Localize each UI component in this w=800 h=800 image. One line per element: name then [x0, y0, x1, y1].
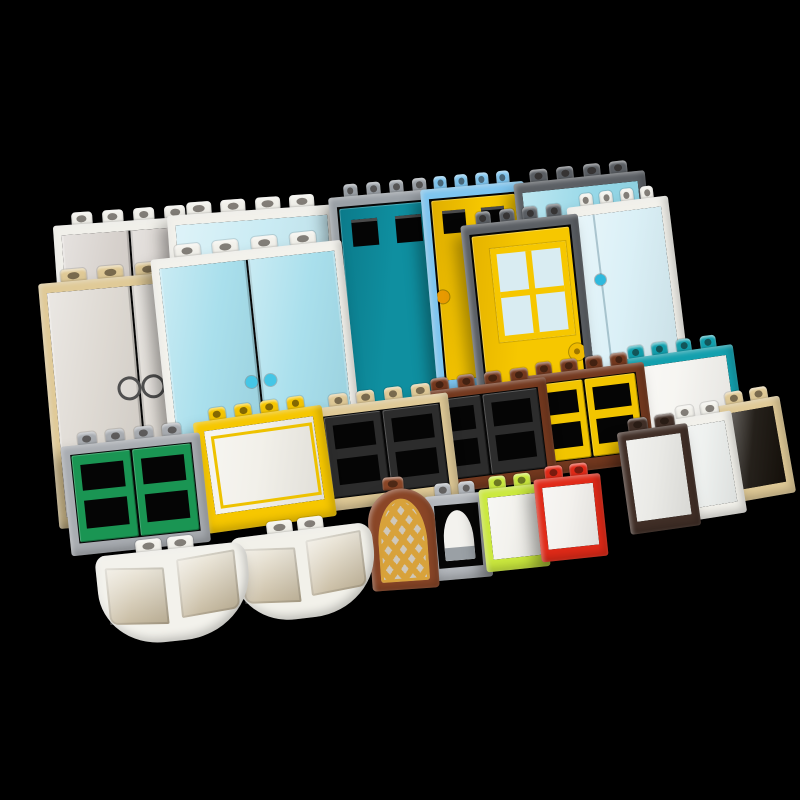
stud-hole [590, 359, 598, 367]
lattice-arch [375, 497, 430, 583]
door-window-4pane [490, 241, 576, 342]
opening [204, 416, 325, 514]
sash-hole [141, 454, 186, 484]
stud-hole [104, 269, 117, 277]
stud-hole [296, 198, 308, 206]
stud-hole [213, 410, 222, 418]
stud-hole [181, 247, 194, 255]
stud-hole [603, 194, 610, 202]
opening [434, 502, 483, 569]
stud-hole [77, 215, 87, 223]
stud-hole [139, 429, 149, 437]
opening [626, 433, 692, 522]
sash-hole [395, 447, 439, 478]
stud-hole [439, 486, 447, 494]
stud-hole [303, 520, 316, 529]
stud-hole [705, 405, 714, 413]
stud-hole [488, 374, 497, 382]
stud-hole [297, 235, 310, 243]
stud-hole [291, 399, 300, 407]
stud-hole [258, 239, 271, 247]
stud-hole [549, 469, 558, 477]
arched-opening [441, 509, 475, 562]
glass-sheen [105, 567, 170, 625]
stud-hole [615, 356, 623, 364]
stud-hole [754, 390, 763, 399]
door-window-hole [395, 214, 423, 243]
stud-hole [167, 426, 177, 434]
stud-hole [139, 211, 149, 219]
inner-pane-frame [210, 422, 322, 509]
stud-hole [565, 362, 573, 370]
window-small-red [532, 461, 609, 562]
stud-hole [174, 539, 187, 547]
bow-glass-right [305, 530, 367, 597]
stud-hole [458, 178, 465, 186]
window-sash [482, 388, 546, 474]
sash-hole [81, 460, 126, 490]
sash-hole [491, 398, 533, 426]
stud-hole [623, 192, 630, 200]
stud-hole [265, 403, 274, 411]
glass-sheen [176, 549, 241, 618]
stud-hole [67, 272, 80, 280]
glass-sheen [487, 493, 541, 560]
lego-doors-windows-photo [0, 0, 800, 800]
stud-hole [479, 215, 487, 223]
stud-hole [644, 189, 651, 197]
opening [487, 493, 541, 560]
train-window-yellow [191, 393, 337, 534]
stud-hole [587, 167, 596, 175]
sash-hole [84, 496, 129, 528]
stud-hole [416, 387, 425, 395]
opening [70, 442, 201, 543]
glass-sheen [626, 433, 692, 522]
window-sill-blind [445, 546, 476, 562]
door-handle-hole [574, 348, 581, 355]
stud-hole [574, 466, 583, 474]
stud-hole [393, 183, 400, 191]
bow-window-white-left [93, 529, 255, 648]
stud-hole [462, 484, 470, 492]
stud-hole [550, 207, 558, 215]
stud-hole [499, 174, 506, 182]
stud-hole [388, 480, 398, 488]
stud-hole [503, 212, 511, 220]
stud-hole [515, 371, 524, 379]
window-sash [132, 444, 199, 536]
stud-hole [582, 197, 589, 205]
stud-hole [656, 345, 664, 353]
stud-hole [614, 164, 623, 172]
sash-hole [391, 413, 434, 442]
stud-hole [273, 523, 286, 532]
stud-hole [239, 407, 248, 415]
frame-body [617, 423, 702, 535]
glass-pane [487, 493, 541, 560]
glass-pane [542, 483, 599, 550]
stud-hole [462, 378, 471, 386]
stud-hole [660, 417, 670, 425]
stud-hole [334, 397, 343, 405]
frame-body [94, 541, 255, 648]
stud-hole [437, 179, 444, 187]
sash-hole [333, 421, 376, 450]
window-sash [71, 450, 138, 542]
stud-hole [680, 342, 688, 350]
stud-hole [493, 479, 502, 487]
bow-glass-left [105, 567, 170, 625]
door-handle [436, 290, 450, 304]
stud-hole [517, 476, 526, 484]
stud-hole [82, 435, 92, 443]
stud-hole [108, 213, 118, 221]
stud-hole [561, 170, 570, 178]
stud-hole [347, 187, 354, 195]
frame-body [193, 405, 337, 534]
stud-hole [262, 200, 274, 208]
stud-hole [388, 390, 397, 398]
stud-hole [633, 421, 643, 429]
stud-hole [479, 176, 486, 184]
opening [542, 483, 599, 550]
bow-glass-right [176, 549, 241, 618]
stud-hole [193, 205, 205, 213]
stud-hole [219, 243, 232, 251]
stud-hole [227, 202, 239, 210]
stud-hole [704, 338, 712, 346]
glass-sheen [542, 483, 599, 550]
stud-hole [534, 172, 543, 180]
stud-hole [526, 210, 534, 218]
stud-hole [143, 542, 156, 550]
sash-hole [145, 490, 190, 522]
stud-hole [370, 185, 377, 193]
stud-hole [729, 394, 738, 403]
sash-hole [495, 431, 537, 461]
stud-hole [110, 432, 120, 440]
glass-pane [626, 433, 692, 522]
sash-hole [592, 382, 631, 410]
stud-hole [361, 393, 370, 401]
frame-body [533, 473, 608, 563]
glass-sheen [305, 530, 367, 597]
door-window-hole [351, 218, 379, 247]
